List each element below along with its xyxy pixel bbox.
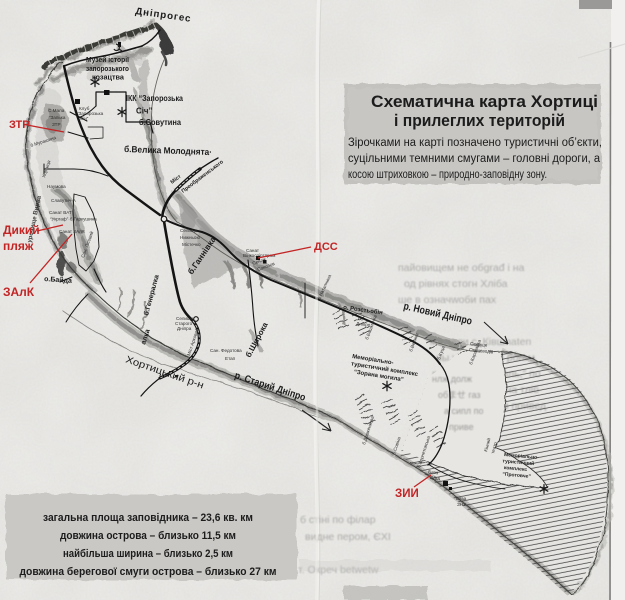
svg-text:ЗНУ: ЗНУ xyxy=(457,502,466,507)
svg-text:Зірочками на карті позначено т: Зірочками на карті позначено туристичні … xyxy=(348,137,602,149)
svg-text:пайовищем не обgrađ і на: пайовищем не обgrađ і на xyxy=(398,262,525,274)
svg-text:найбільша ширина – близько 2,5: найбільша ширина – близько 2,5 км xyxy=(63,548,233,560)
svg-text:“Укргаф”·б.Гаркушина: “Укргаф”·б.Гаркушина xyxy=(50,217,97,222)
svg-text:Санат ЗАлК: Санат ЗАлК xyxy=(59,229,85,234)
svg-text:Музей історії: Музей історії xyxy=(86,55,130,64)
svg-text:пляж: пляж xyxy=(3,239,34,253)
svg-text:загальна площа заповідника – 2: загальна площа заповідника – 23,6 кв. км xyxy=(43,512,253,524)
svg-text:ЗАлК: ЗАлК xyxy=(3,285,35,299)
svg-text:косою штриховкою – природно-за: косою штриховкою – природно-заповідну зо… xyxy=(348,169,547,181)
svg-text:Сан. Федотова: Сан. Федотова xyxy=(210,348,242,353)
svg-text:Січ”: Січ” xyxy=(136,107,152,116)
svg-text:Етап: Етап xyxy=(225,356,236,361)
svg-text:довжина острова – близько 11,5: довжина острова – близько 11,5 км xyxy=(60,530,236,542)
svg-text:База: База xyxy=(456,496,467,501)
svg-text:б.Совутина: б.Совутина xyxy=(139,117,181,127)
svg-text:Наумова: Наумова xyxy=(47,184,66,189)
svg-text:Дикий: Дикий xyxy=(3,223,40,237)
svg-text:обませ газ: обませ газ xyxy=(438,390,481,400)
svg-text:і прилеглих територій: і прилеглих територій xyxy=(394,112,565,130)
svg-text:Славутич-А: Славутич-А xyxy=(51,198,77,203)
svg-text:“Запька: “Запька xyxy=(49,115,66,120)
svg-text:приве: приве xyxy=(449,422,474,432)
svg-text:козацтва: козацтва xyxy=(92,73,125,82)
svg-text:Санат ВАТ: Санат ВАТ xyxy=(49,210,72,215)
svg-text:б стіні по філар: б стіні по філар xyxy=(300,514,376,526)
svg-text:Схематична карта Хортиці: Схематична карта Хортиці xyxy=(371,93,598,111)
svg-text:ІКК “Запорозька: ІКК “Запорозька xyxy=(126,94,184,103)
svg-text:довжина берегової смуги остров: довжина берегової смуги острова – близьк… xyxy=(20,566,277,578)
svg-text:С.Мала: С.Мала xyxy=(48,108,65,113)
svg-text:Дніпра: Дніпра xyxy=(177,326,192,331)
svg-text:Містечко: Містечко xyxy=(182,242,201,247)
svg-text:суцільними темними смугами – г: суцільними темними смугами – головні дор… xyxy=(348,153,601,165)
svg-text:нлж долж: нлж долж xyxy=(432,374,472,384)
svg-text:ЗТР: ЗТР xyxy=(9,119,30,131)
svg-text:Селище: Селище xyxy=(180,228,198,233)
svg-text:ЗИИ: ЗИИ xyxy=(395,488,419,500)
svg-text:Нижньою: Нижньою xyxy=(180,235,200,240)
svg-text:ЗТР: ЗТР xyxy=(52,122,61,127)
svg-text:од рівнях стогн Хліба: од рівнях стогн Хліба xyxy=(404,278,508,290)
svg-text:Січ”: Січ” xyxy=(80,116,89,121)
svg-text:ДСС: ДСС xyxy=(314,241,338,253)
